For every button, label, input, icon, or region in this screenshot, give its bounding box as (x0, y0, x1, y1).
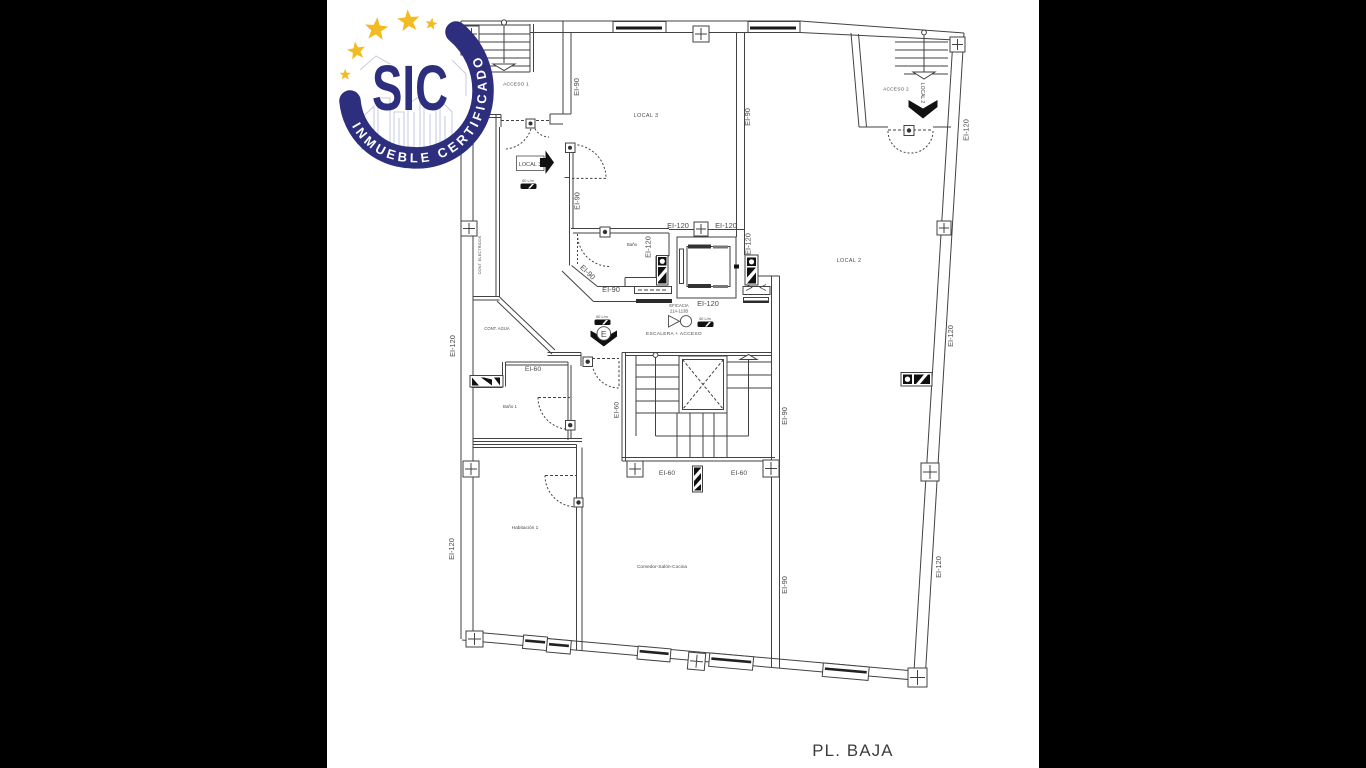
svg-text:LOCAL 2: LOCAL 2 (837, 258, 862, 264)
svg-text:60 L/m: 60 L/m (522, 179, 534, 183)
svg-text:EI-90: EI-90 (780, 576, 789, 594)
svg-text:Baño: Baño (627, 242, 638, 247)
svg-text:EI-90: EI-90 (573, 192, 582, 210)
svg-text:CONT. ELECTRICOS: CONT. ELECTRICOS (477, 235, 482, 274)
svg-text:ACCESO 2: ACCESO 2 (883, 87, 909, 93)
svg-text:EI-90: EI-90 (743, 108, 752, 126)
svg-text:EI-60: EI-60 (659, 470, 675, 477)
svg-text:EI-120: EI-120 (962, 119, 971, 141)
svg-text:PL. BAJA: PL. BAJA (812, 741, 893, 760)
svg-text:EFICACIA: EFICACIA (669, 303, 689, 308)
svg-text:EI-120: EI-120 (448, 335, 457, 357)
svg-text:EI-120: EI-120 (644, 236, 653, 258)
svg-text:EI-120: EI-120 (946, 325, 955, 347)
svg-text:EI-120: EI-120 (697, 299, 719, 308)
svg-text:60 L/m: 60 L/m (699, 317, 711, 321)
svg-text:EI-120: EI-120 (447, 538, 456, 560)
svg-text:EI-120: EI-120 (744, 233, 753, 255)
svg-text:Comedor-Salón-Cocina: Comedor-Salón-Cocina (637, 564, 687, 570)
svg-text:Baño 1: Baño 1 (503, 404, 517, 409)
svg-text:ACCESO 1: ACCESO 1 (503, 82, 529, 88)
svg-text:E: E (601, 329, 607, 339)
svg-text:LOCAL 3: LOCAL 3 (519, 162, 542, 168)
svg-text:EI-90: EI-90 (572, 78, 581, 96)
svg-text:EI-60: EI-60 (614, 402, 621, 418)
svg-text:ESCALERA + ACCESO: ESCALERA + ACCESO (646, 331, 702, 337)
svg-text:Habitación 1: Habitación 1 (512, 525, 539, 531)
svg-text:EI-90: EI-90 (602, 285, 620, 294)
svg-text:EI-120: EI-120 (715, 221, 737, 230)
svg-text:LOCAL 2: LOCAL 2 (919, 83, 925, 104)
svg-text:EI-120: EI-120 (667, 221, 689, 230)
svg-text:EI-90: EI-90 (780, 407, 789, 425)
svg-text:EI-60: EI-60 (525, 366, 541, 373)
svg-text:CONT. AGUA: CONT. AGUA (484, 326, 510, 331)
svg-text:60 L/m: 60 L/m (596, 315, 608, 319)
svg-text:EI-60: EI-60 (731, 470, 747, 477)
svg-text:LOCAL 3: LOCAL 3 (634, 113, 659, 119)
svg-text:EI-120: EI-120 (934, 556, 943, 578)
svg-text:21A-113B: 21A-113B (670, 309, 689, 314)
svg-text:SIC: SIC (372, 52, 448, 124)
